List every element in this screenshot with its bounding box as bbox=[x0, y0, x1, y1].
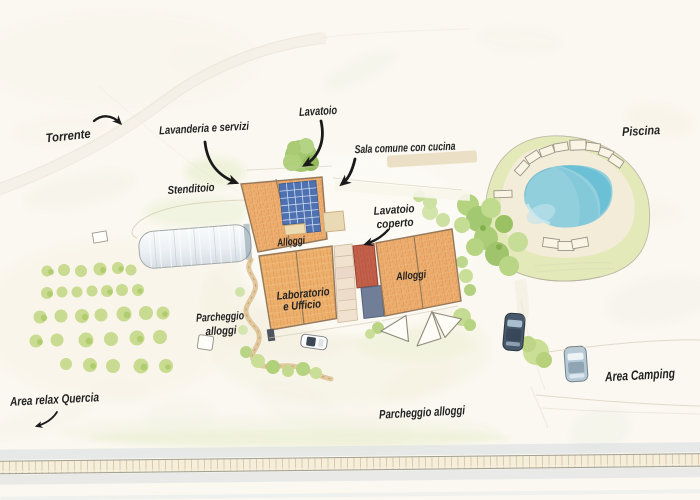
svg-text:Parcheggio: Parcheggio bbox=[196, 310, 245, 324]
svg-text:Piscina: Piscina bbox=[622, 123, 661, 139]
svg-text:Lavatoio: Lavatoio bbox=[299, 103, 338, 119]
svg-text:alloggi: alloggi bbox=[205, 325, 237, 339]
